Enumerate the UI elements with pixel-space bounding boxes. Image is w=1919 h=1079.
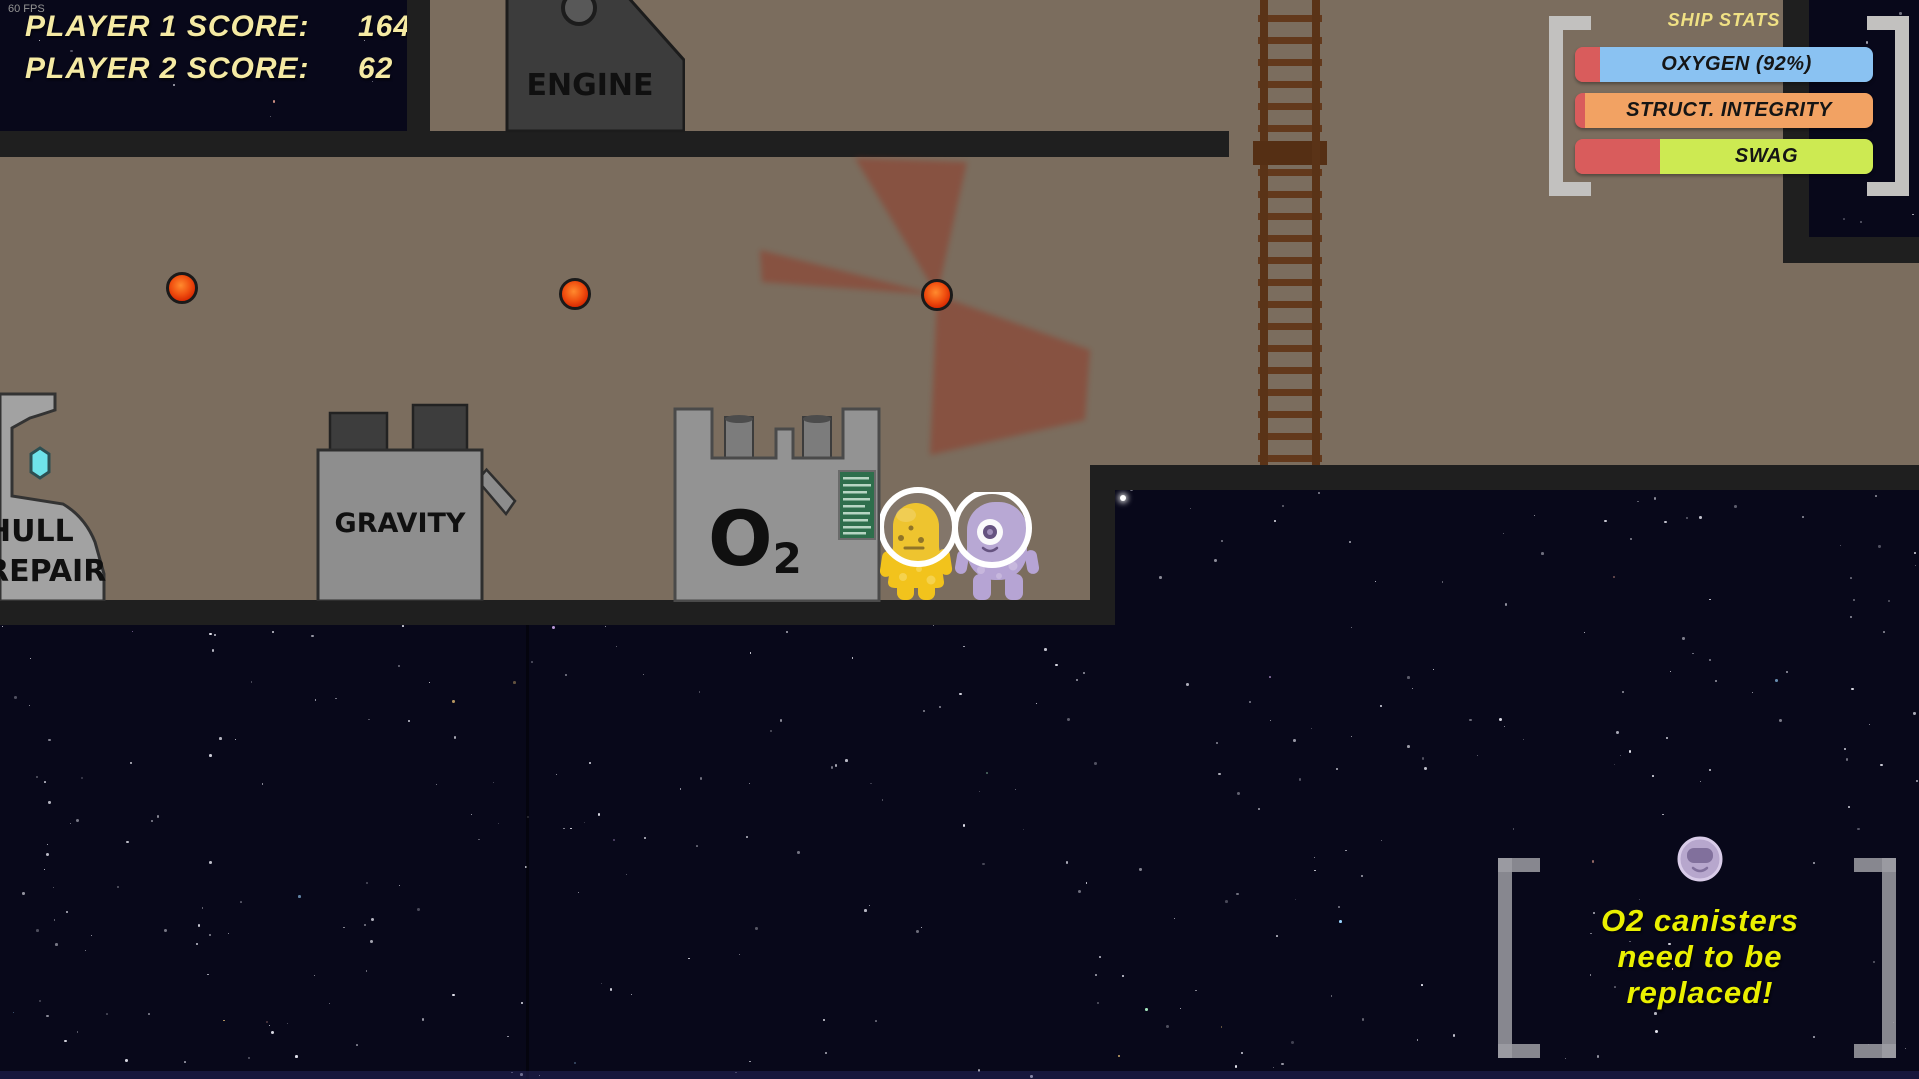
purple-alien-body	[953, 492, 1041, 602]
engine-shape	[505, 0, 685, 133]
depleted-segment	[1575, 47, 1600, 82]
red-orb-pickup[interactable]	[166, 272, 198, 304]
red-orb-pickup[interactable]	[921, 279, 953, 311]
engine-machine[interactable]: ENGINE	[505, 0, 685, 133]
player-1-yellow-alien	[880, 487, 960, 607]
depleted-segment	[1575, 139, 1660, 174]
fill-segment: OXYGEN (92%)	[1600, 47, 1873, 82]
depleted-segment	[1575, 93, 1585, 128]
notification-line: need to be	[1545, 939, 1855, 975]
hull-repair-label-line2: REPAIR	[0, 554, 106, 589]
oxygen-machine[interactable]: O2	[672, 405, 882, 602]
engine-label: ENGINE	[505, 68, 675, 103]
notification-line: replaced!	[1545, 975, 1855, 1011]
window-frame	[1809, 237, 1919, 263]
oxygen-bar-label: OXYGEN (92%)	[1661, 53, 1811, 76]
purple-alien-avatar-icon	[1676, 834, 1724, 884]
player-2-purple-alien	[953, 492, 1041, 607]
fill-segment: SWAG	[1660, 139, 1873, 174]
o2-status-screen	[839, 471, 875, 539]
oxygen-label-subscript: 2	[773, 534, 802, 583]
bottom-edge-strip	[0, 1071, 1919, 1079]
notification-message: O2 canisters need to be replaced!	[1545, 903, 1855, 1011]
engine-piston-icon	[563, 0, 595, 24]
oxygen-label-main: O	[708, 494, 773, 583]
ladder[interactable]	[1258, 0, 1322, 465]
gravity-machine[interactable]: GRAVITY	[316, 403, 518, 601]
notification-line: O2 canisters	[1545, 903, 1855, 939]
oxygen-stat-bar: OXYGEN (92%)	[1575, 47, 1873, 82]
fill-segment: STRUCT. INTEGRITY	[1585, 93, 1873, 128]
game-screen: ENGINE GRAVITY	[0, 0, 1919, 1079]
integrity-bar-label: STRUCT. INTEGRITY	[1626, 99, 1832, 122]
ship-stats-title: SHIP STATS	[1575, 10, 1873, 31]
right-deck-floor	[1090, 465, 1919, 490]
window-frame	[407, 0, 430, 157]
swag-stat-bar: SWAG	[1575, 139, 1873, 174]
oxygen-label: O2	[708, 501, 802, 580]
deck-step-wall	[1090, 467, 1115, 625]
player2-score-label: PLAYER 2 SCORE:	[25, 52, 310, 86]
hull-repair-label-line1: HULL	[0, 514, 74, 549]
ship-wall	[1783, 263, 1919, 467]
ladder-platform-rung	[1253, 141, 1327, 165]
notification-bracket-left	[1498, 858, 1540, 1058]
red-orb-pickup[interactable]	[559, 278, 591, 310]
repair-crystal-icon	[31, 448, 49, 478]
gravity-shape	[316, 403, 518, 601]
notification-bracket-right	[1854, 858, 1896, 1058]
player1-score-value: 164	[358, 10, 411, 44]
hull-repair-machine[interactable]: HULL REPAIR	[0, 382, 112, 601]
gravity-label: GRAVITY	[318, 508, 482, 539]
swag-bar-label: SWAG	[1735, 145, 1798, 168]
helmet-ring	[955, 492, 1029, 565]
window-frame	[1783, 0, 1809, 263]
background-seam	[526, 625, 529, 1079]
player1-score-label: PLAYER 1 SCORE:	[25, 10, 310, 44]
helmet-ring	[881, 490, 955, 564]
player2-score-value: 62	[358, 52, 393, 86]
fps-counter: 60 FPS	[8, 3, 45, 15]
integrity-stat-bar: STRUCT. INTEGRITY	[1575, 93, 1873, 128]
stats-bracket-right	[1867, 16, 1909, 196]
yellow-alien-body	[880, 487, 960, 602]
